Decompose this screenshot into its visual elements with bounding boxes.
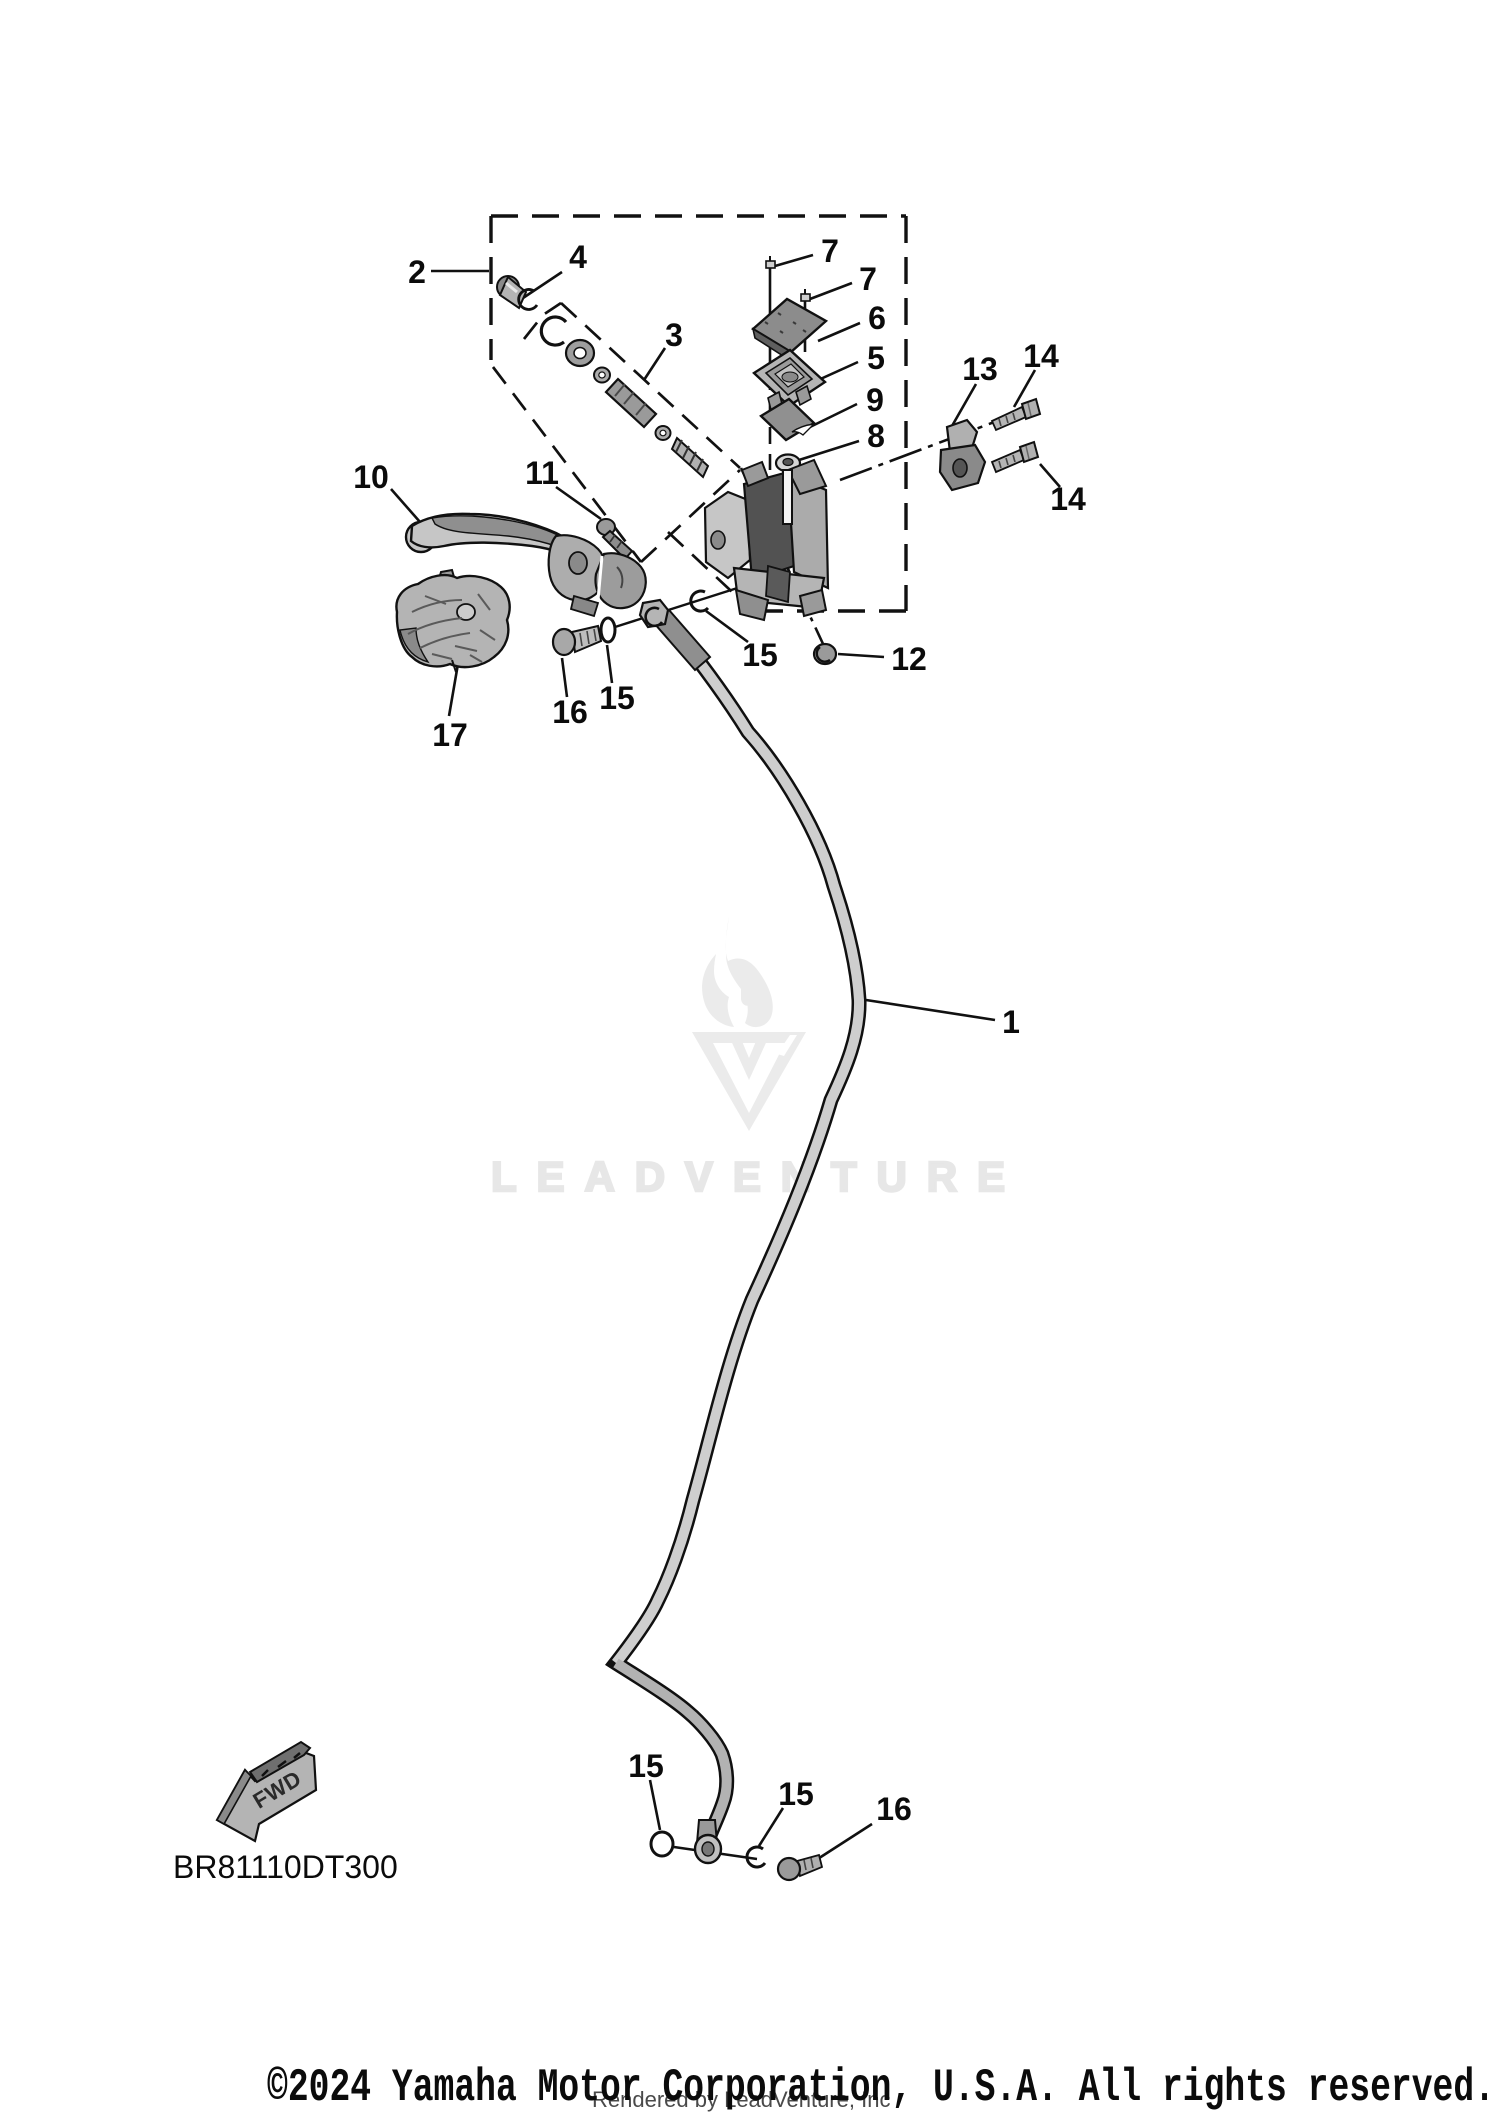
svg-text:10: 10 xyxy=(353,459,389,495)
svg-text:8: 8 xyxy=(867,418,885,454)
svg-text:14: 14 xyxy=(1023,338,1059,374)
svg-text:3: 3 xyxy=(665,317,683,353)
svg-text:4: 4 xyxy=(569,239,587,275)
svg-text:7: 7 xyxy=(821,233,839,269)
svg-text:15: 15 xyxy=(778,1776,814,1812)
svg-text:©2024 Yamaha Motor Corporation: ©2024 Yamaha Motor Corporation, U.S.A. A… xyxy=(267,2062,1495,2114)
svg-text:1: 1 xyxy=(1002,1004,1020,1040)
svg-text:7: 7 xyxy=(859,261,877,297)
svg-text:13: 13 xyxy=(962,351,998,387)
svg-text:9: 9 xyxy=(866,382,884,418)
svg-text:12: 12 xyxy=(891,641,927,677)
svg-text:15: 15 xyxy=(742,637,778,673)
svg-text:BR81110DT300: BR81110DT300 xyxy=(173,1849,398,1885)
svg-text:14: 14 xyxy=(1050,481,1086,517)
svg-text:15: 15 xyxy=(599,680,635,716)
svg-text:16: 16 xyxy=(552,694,588,730)
svg-text:11: 11 xyxy=(525,455,559,491)
svg-text:17: 17 xyxy=(432,717,468,753)
svg-text:16: 16 xyxy=(876,1791,912,1827)
svg-text:2: 2 xyxy=(408,254,426,290)
svg-text:6: 6 xyxy=(868,300,886,336)
svg-text:5: 5 xyxy=(867,340,885,376)
svg-text:15: 15 xyxy=(628,1748,664,1784)
